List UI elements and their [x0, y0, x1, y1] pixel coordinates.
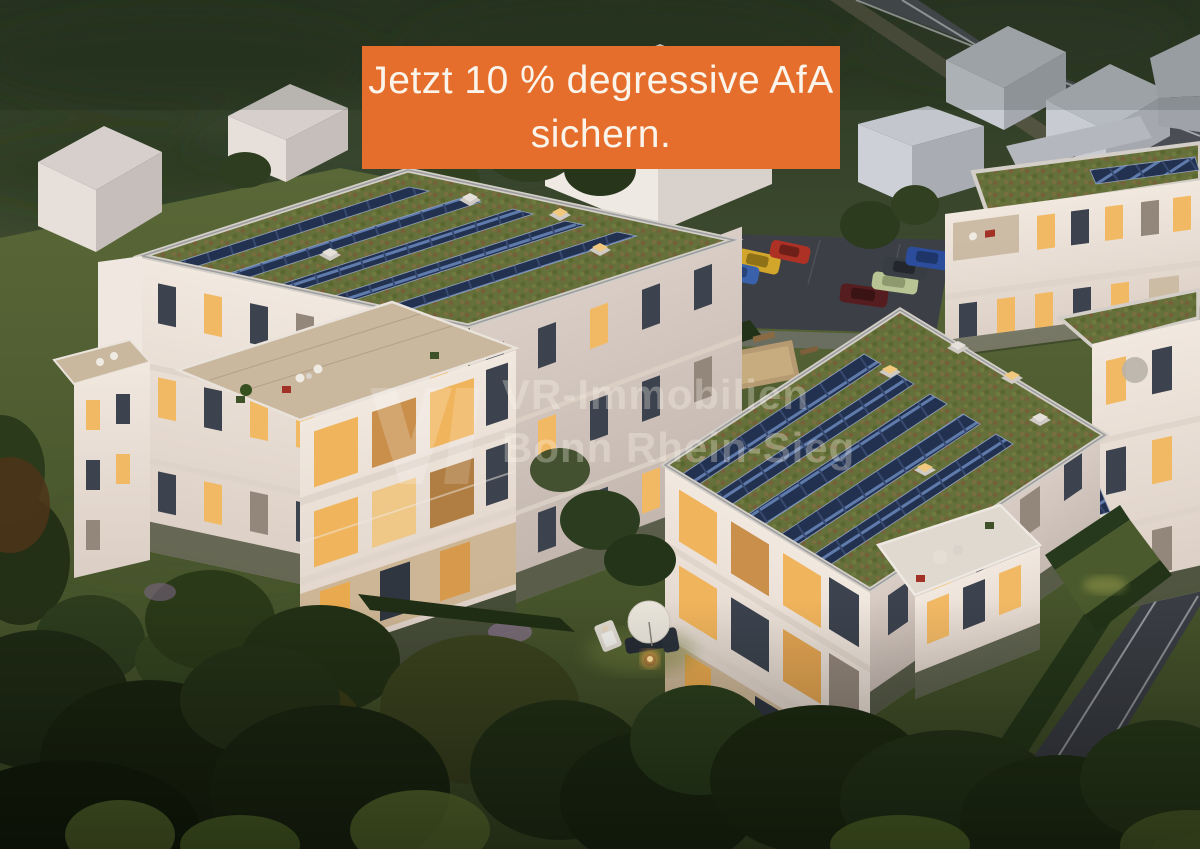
promo-banner-line2: sichern. — [531, 108, 672, 162]
wicker-chair — [933, 550, 947, 564]
promo-banner: Jetzt 10 % degressive AfA sichern. — [362, 46, 840, 169]
terrace-chair — [296, 374, 305, 383]
red-chair — [916, 575, 925, 582]
bottom-vignette — [0, 600, 1200, 849]
red-lounger — [282, 386, 291, 393]
aerial-rendering: Jetzt 10 % degressive AfA sichern. VR-Im… — [0, 0, 1200, 849]
promo-banner-line1: Jetzt 10 % degressive AfA — [368, 54, 834, 108]
terrace-chair — [314, 365, 323, 374]
balcony-umbrella — [1122, 357, 1148, 383]
